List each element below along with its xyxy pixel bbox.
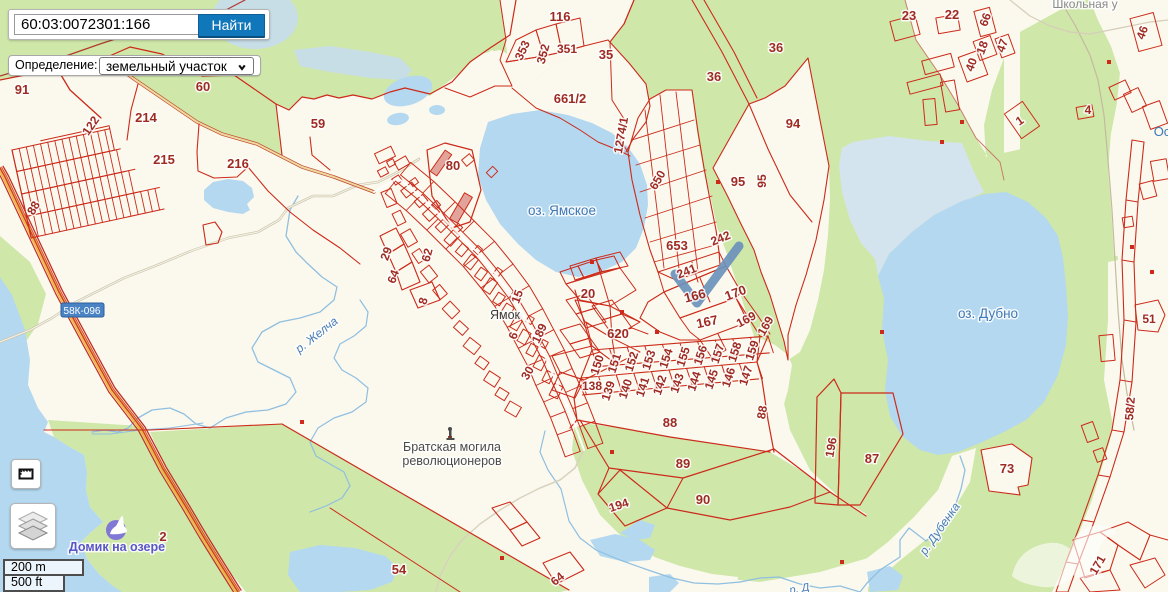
svg-text:22: 22 — [945, 7, 959, 22]
svg-text:90: 90 — [696, 492, 710, 507]
svg-text:73: 73 — [1000, 461, 1014, 476]
svg-text:95: 95 — [755, 174, 769, 188]
svg-text:59: 59 — [311, 116, 325, 131]
svg-text:58К-096: 58К-096 — [64, 306, 101, 317]
svg-text:215: 215 — [153, 152, 175, 167]
svg-text:Ос: Ос — [1154, 124, 1168, 139]
svg-text:4: 4 — [1085, 103, 1092, 117]
svg-text:89: 89 — [676, 456, 690, 471]
svg-text:216: 216 — [227, 156, 249, 171]
svg-text:116: 116 — [550, 9, 571, 24]
svg-text:214: 214 — [135, 110, 157, 125]
svg-text:95: 95 — [731, 174, 745, 189]
svg-text:Братская могила: Братская могила — [403, 440, 501, 454]
svg-text:91: 91 — [15, 82, 29, 97]
svg-text:оз. Ямское: оз. Ямское — [528, 203, 596, 218]
svg-text:138: 138 — [582, 379, 602, 393]
svg-text:351: 351 — [557, 42, 577, 56]
svg-text:Ямок: Ямок — [490, 308, 521, 322]
svg-text:36: 36 — [707, 69, 721, 84]
svg-text:Домик на озере: Домик на озере — [69, 540, 165, 554]
svg-text:36: 36 — [769, 40, 783, 55]
svg-text:51: 51 — [1142, 312, 1156, 326]
svg-text:80: 80 — [446, 158, 460, 173]
svg-text:653: 653 — [666, 238, 688, 253]
svg-text:87: 87 — [865, 451, 879, 466]
svg-text:58/2: 58/2 — [1122, 396, 1138, 421]
svg-text:35: 35 — [599, 47, 613, 62]
svg-text:54: 54 — [392, 562, 407, 577]
svg-text:661/2: 661/2 — [554, 91, 587, 106]
svg-text:оз. Дубно: оз. Дубно — [958, 306, 1018, 321]
svg-text:88: 88 — [663, 415, 677, 430]
svg-text:60: 60 — [196, 79, 210, 94]
svg-text:23: 23 — [902, 8, 916, 23]
svg-text:Школьная у: Школьная у — [1052, 0, 1117, 11]
svg-text:620: 620 — [607, 326, 629, 341]
svg-text:20: 20 — [581, 286, 595, 301]
svg-text:революционеров: революционеров — [402, 454, 502, 468]
svg-text:94: 94 — [786, 116, 801, 131]
svg-text:88: 88 — [754, 404, 770, 420]
